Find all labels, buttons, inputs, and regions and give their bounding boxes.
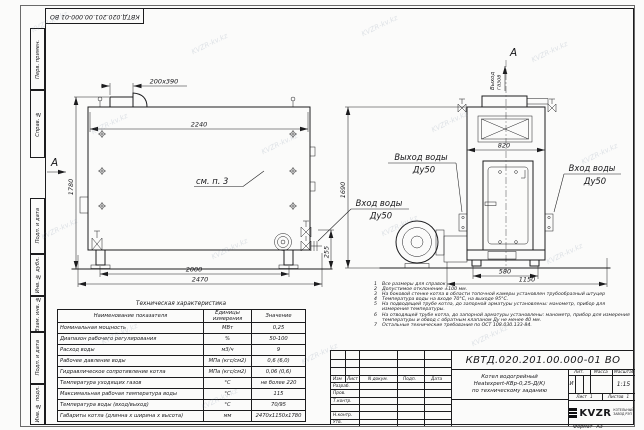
front-foot-left <box>91 265 110 269</box>
svg-text:Выход воды: Выход воды <box>394 152 448 162</box>
svg-text:1690: 1690 <box>339 182 347 199</box>
front-leg-left <box>96 250 105 265</box>
svg-text:Ду50: Ду50 <box>412 165 435 175</box>
note-item: 7Остальные технические требования по ОСТ… <box>374 323 632 328</box>
svg-text:255: 255 <box>323 246 331 258</box>
sheet-cell: Лист 1 <box>568 393 601 400</box>
top-rotated-stamp: КВТД.020.201.00.000-01 ВО <box>45 8 144 24</box>
front-leg-right <box>284 250 293 265</box>
side-ash-box <box>488 252 516 260</box>
doc-number: КВТД.020.201.00.000-01 ВО <box>451 351 635 369</box>
margin-box-podp-data-1: Подп. и дата <box>30 198 45 254</box>
tech-table-title: Техническая характеристика <box>57 301 305 307</box>
tech-row: Рабочее давление водыМПа (кгс/см2)0,6 (6… <box>58 356 306 367</box>
svg-text:200х390: 200х390 <box>150 78 179 86</box>
front-peephole <box>275 234 292 251</box>
tb-line <box>331 389 451 390</box>
water-inlet-label-front: Вход воды Ду50 <box>318 198 409 241</box>
side-fan <box>396 221 467 268</box>
margin-box-vzam-inv: Взам. инв. № <box>30 296 45 332</box>
row-developed: Разраб. <box>333 384 350 389</box>
tb-line <box>331 367 451 368</box>
tech-row: Диапазон рабочего регулирования%50-100 <box>58 334 306 345</box>
tb-line <box>331 359 451 360</box>
title-block: Изм Лист N докум. Подп. Дата Разраб. Про… <box>330 350 634 425</box>
tech-table: Наименование показателя Единицыизмерения… <box>57 309 306 422</box>
front-dim-2240: 2240 <box>90 112 308 132</box>
company-logo: KVZR КОТЕЛЬНЫЙ ЗАВОД РЭП <box>568 400 635 426</box>
side-door <box>483 161 533 250</box>
front-duct-scroll <box>133 93 147 107</box>
scale-value: 1:15 <box>612 375 635 393</box>
row-checked: Пров. <box>333 391 346 396</box>
col-value-header: Значение <box>252 310 306 323</box>
format-note: Формат А3 <box>573 425 603 430</box>
tech-row: Габариты котла (длинна х ширина х высота… <box>58 411 306 422</box>
front-view: 2240 200х390 1780 А см. п. 3 <box>47 78 334 288</box>
side-flange-right <box>545 214 553 231</box>
margin-box-perv-primen: Перв. примен. <box>30 28 45 90</box>
tech-row: Номинальная мощностьМВт0,25 <box>58 323 306 334</box>
svg-text:580: 580 <box>499 268 511 276</box>
top-stamp-doc-number: КВТД.020.201.00.000-01 ВО <box>50 13 140 20</box>
tb-line <box>451 399 568 400</box>
kvzr-logo-icon <box>569 408 577 418</box>
tb-line <box>575 375 576 393</box>
col-izm: Изм <box>333 377 342 382</box>
front-wall-tab-1 <box>310 147 315 156</box>
front-left-stub <box>80 197 88 213</box>
front-see-note: см. п. 3 <box>194 171 264 187</box>
margin-box-sprav-no: Справ. № <box>30 90 45 158</box>
side-flange-left <box>459 214 467 231</box>
front-wall-tab-2 <box>310 182 315 191</box>
product-name: Котел водогрейный Heatexpert-КВр-0,25-Д(… <box>451 369 568 399</box>
svg-text:2240: 2240 <box>191 121 208 129</box>
front-anchor-marks <box>98 130 297 210</box>
front-top-duct <box>110 97 133 107</box>
front-lug-left <box>98 97 102 107</box>
tb-line <box>331 404 451 405</box>
front-dim-255: 255 <box>318 230 334 269</box>
col-name-header: Наименование показателя <box>58 310 204 323</box>
side-corner-valve-right <box>548 99 556 112</box>
side-corner-valve-left <box>458 99 466 112</box>
side-view-a-mark: А Выход газов <box>490 47 517 91</box>
svg-text:Ду50: Ду50 <box>369 211 392 221</box>
margin-box-inv-podl: Инв. № подл. <box>30 384 45 425</box>
row-approved: Утв. <box>333 420 342 425</box>
note-item: 5На подводящей трубе котла, до запорной … <box>374 302 632 312</box>
side-leg-right <box>530 260 539 266</box>
tech-row: Температура уходящих газов°Сне более 220 <box>58 378 306 389</box>
technical-notes: 1Все размеры для справок 2Допустимое отк… <box>374 282 632 328</box>
svg-text:Вход воды: Вход воды <box>569 163 616 173</box>
col-sign: Подп. <box>403 377 416 382</box>
front-dim-duct: 200х390 <box>101 78 187 96</box>
svg-text:А: А <box>509 47 517 59</box>
side-leg-left <box>472 260 481 266</box>
margin-box-podp-data-2: Подп. и дата <box>30 332 45 384</box>
lit-value: И <box>568 375 575 393</box>
pipe-labels: Выход воды Ду50 Вход воды Ду50 Вход воды… <box>318 152 621 241</box>
sheets-cell: Листов 1 <box>602 393 635 400</box>
col-units-header: Единицыизмерения <box>204 310 252 323</box>
tb-line <box>590 369 591 393</box>
kvzr-logo-text: KVZR <box>579 408 611 419</box>
tech-row: Температура воды (вход/выход)°С70/95 <box>58 400 306 411</box>
svg-text:1780: 1780 <box>67 179 75 196</box>
drawing-page: { "watermark": { "text": "KVZR-kv.kz" },… <box>0 0 644 430</box>
gas-outlet-label-2: газов <box>497 75 503 90</box>
water-inlet-label-side: Вход воды Ду50 <box>554 163 621 212</box>
side-crossed-panel <box>478 116 532 142</box>
svg-text:А: А <box>50 157 58 169</box>
front-foot-right <box>279 265 298 269</box>
drawing-canvas: 2240 200х390 1780 А см. п. 3 <box>45 25 634 300</box>
front-valve-right <box>301 221 322 251</box>
gas-outlet-label-1: Выход <box>490 72 496 90</box>
tech-row: Гидравлическое сопротивление котлаМПа (к… <box>58 367 306 378</box>
tb-line <box>331 419 451 420</box>
svg-text:2470: 2470 <box>192 276 209 284</box>
front-valve-left <box>92 231 102 250</box>
tb-line <box>583 375 584 393</box>
svg-text:Вход воды: Вход воды <box>356 198 403 208</box>
kvzr-logo-subtitle: КОТЕЛЬНЫЙ ЗАВОД РЭП <box>613 409 633 416</box>
front-section-a: А <box>47 157 66 172</box>
row-tcontrol: Т.контр. <box>333 399 352 404</box>
svg-text:2000: 2000 <box>186 266 203 274</box>
margin-box-inv-dubl: Инв. № дубл. <box>30 254 45 296</box>
row-ncontrol: Н.контр. <box>333 413 352 418</box>
tech-characteristics: Техническая характеристика Наименование … <box>57 301 305 422</box>
note-item: 6На отводящей трубе котла, до запорной а… <box>374 313 632 323</box>
mass-header: Масса <box>594 370 608 375</box>
tech-row: Расход водым3/ч9 <box>58 345 306 356</box>
col-date: Дата <box>431 377 442 382</box>
col-list: Лист <box>347 377 358 382</box>
tech-header-row: Наименование показателя Единицыизмерения… <box>58 310 306 323</box>
lit-header: Лит. <box>574 370 584 375</box>
svg-text:см. п. 3: см. п. 3 <box>196 176 228 186</box>
front-lug-right <box>291 97 295 107</box>
col-doc: N докум. <box>368 377 388 382</box>
side-top-pipe <box>527 99 548 105</box>
tech-row: Максимальная рабочая температура воды°С1… <box>58 389 306 400</box>
svg-text:820: 820 <box>498 142 510 150</box>
side-top-duct <box>482 96 527 107</box>
side-dim-1690: 1690 <box>339 107 465 268</box>
svg-text:Ду50: Ду50 <box>583 176 606 186</box>
